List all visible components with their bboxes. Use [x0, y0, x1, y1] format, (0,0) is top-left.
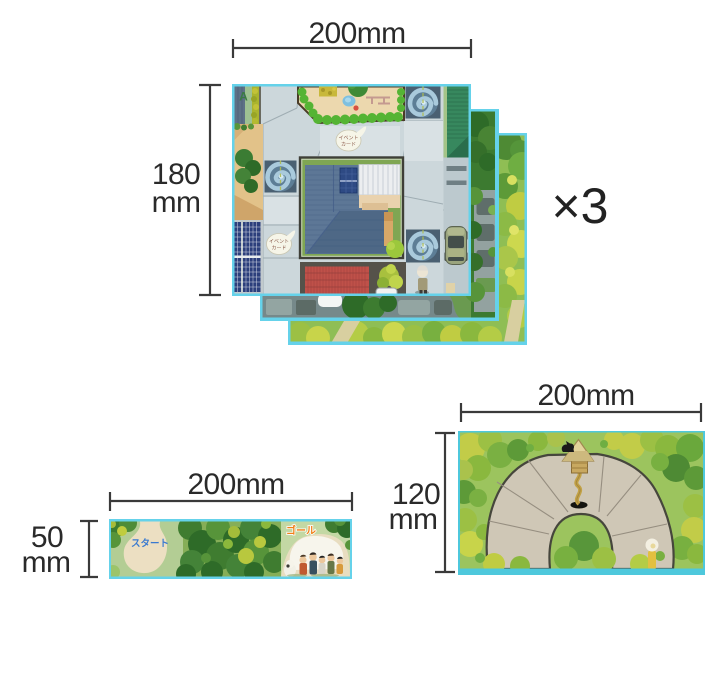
svg-text:カード: カード — [271, 246, 286, 252]
svg-text:ゴール: ゴール — [286, 524, 316, 537]
svg-text:カード: カード — [341, 142, 356, 148]
svg-text:スタート: スタート — [131, 538, 169, 550]
svg-text:A: A — [239, 90, 248, 104]
svg-text:mm: mm — [22, 546, 71, 579]
svg-text:mm: mm — [152, 186, 201, 219]
svg-text:×3: ×3 — [551, 178, 608, 234]
svg-text:イベント: イベント — [338, 136, 358, 142]
svg-text:200mm: 200mm — [308, 17, 405, 50]
svg-text:イベント: イベント — [269, 239, 289, 245]
svg-text:mm: mm — [389, 503, 438, 536]
svg-text:200mm: 200mm — [537, 379, 634, 412]
svg-text:200mm: 200mm — [187, 468, 284, 501]
